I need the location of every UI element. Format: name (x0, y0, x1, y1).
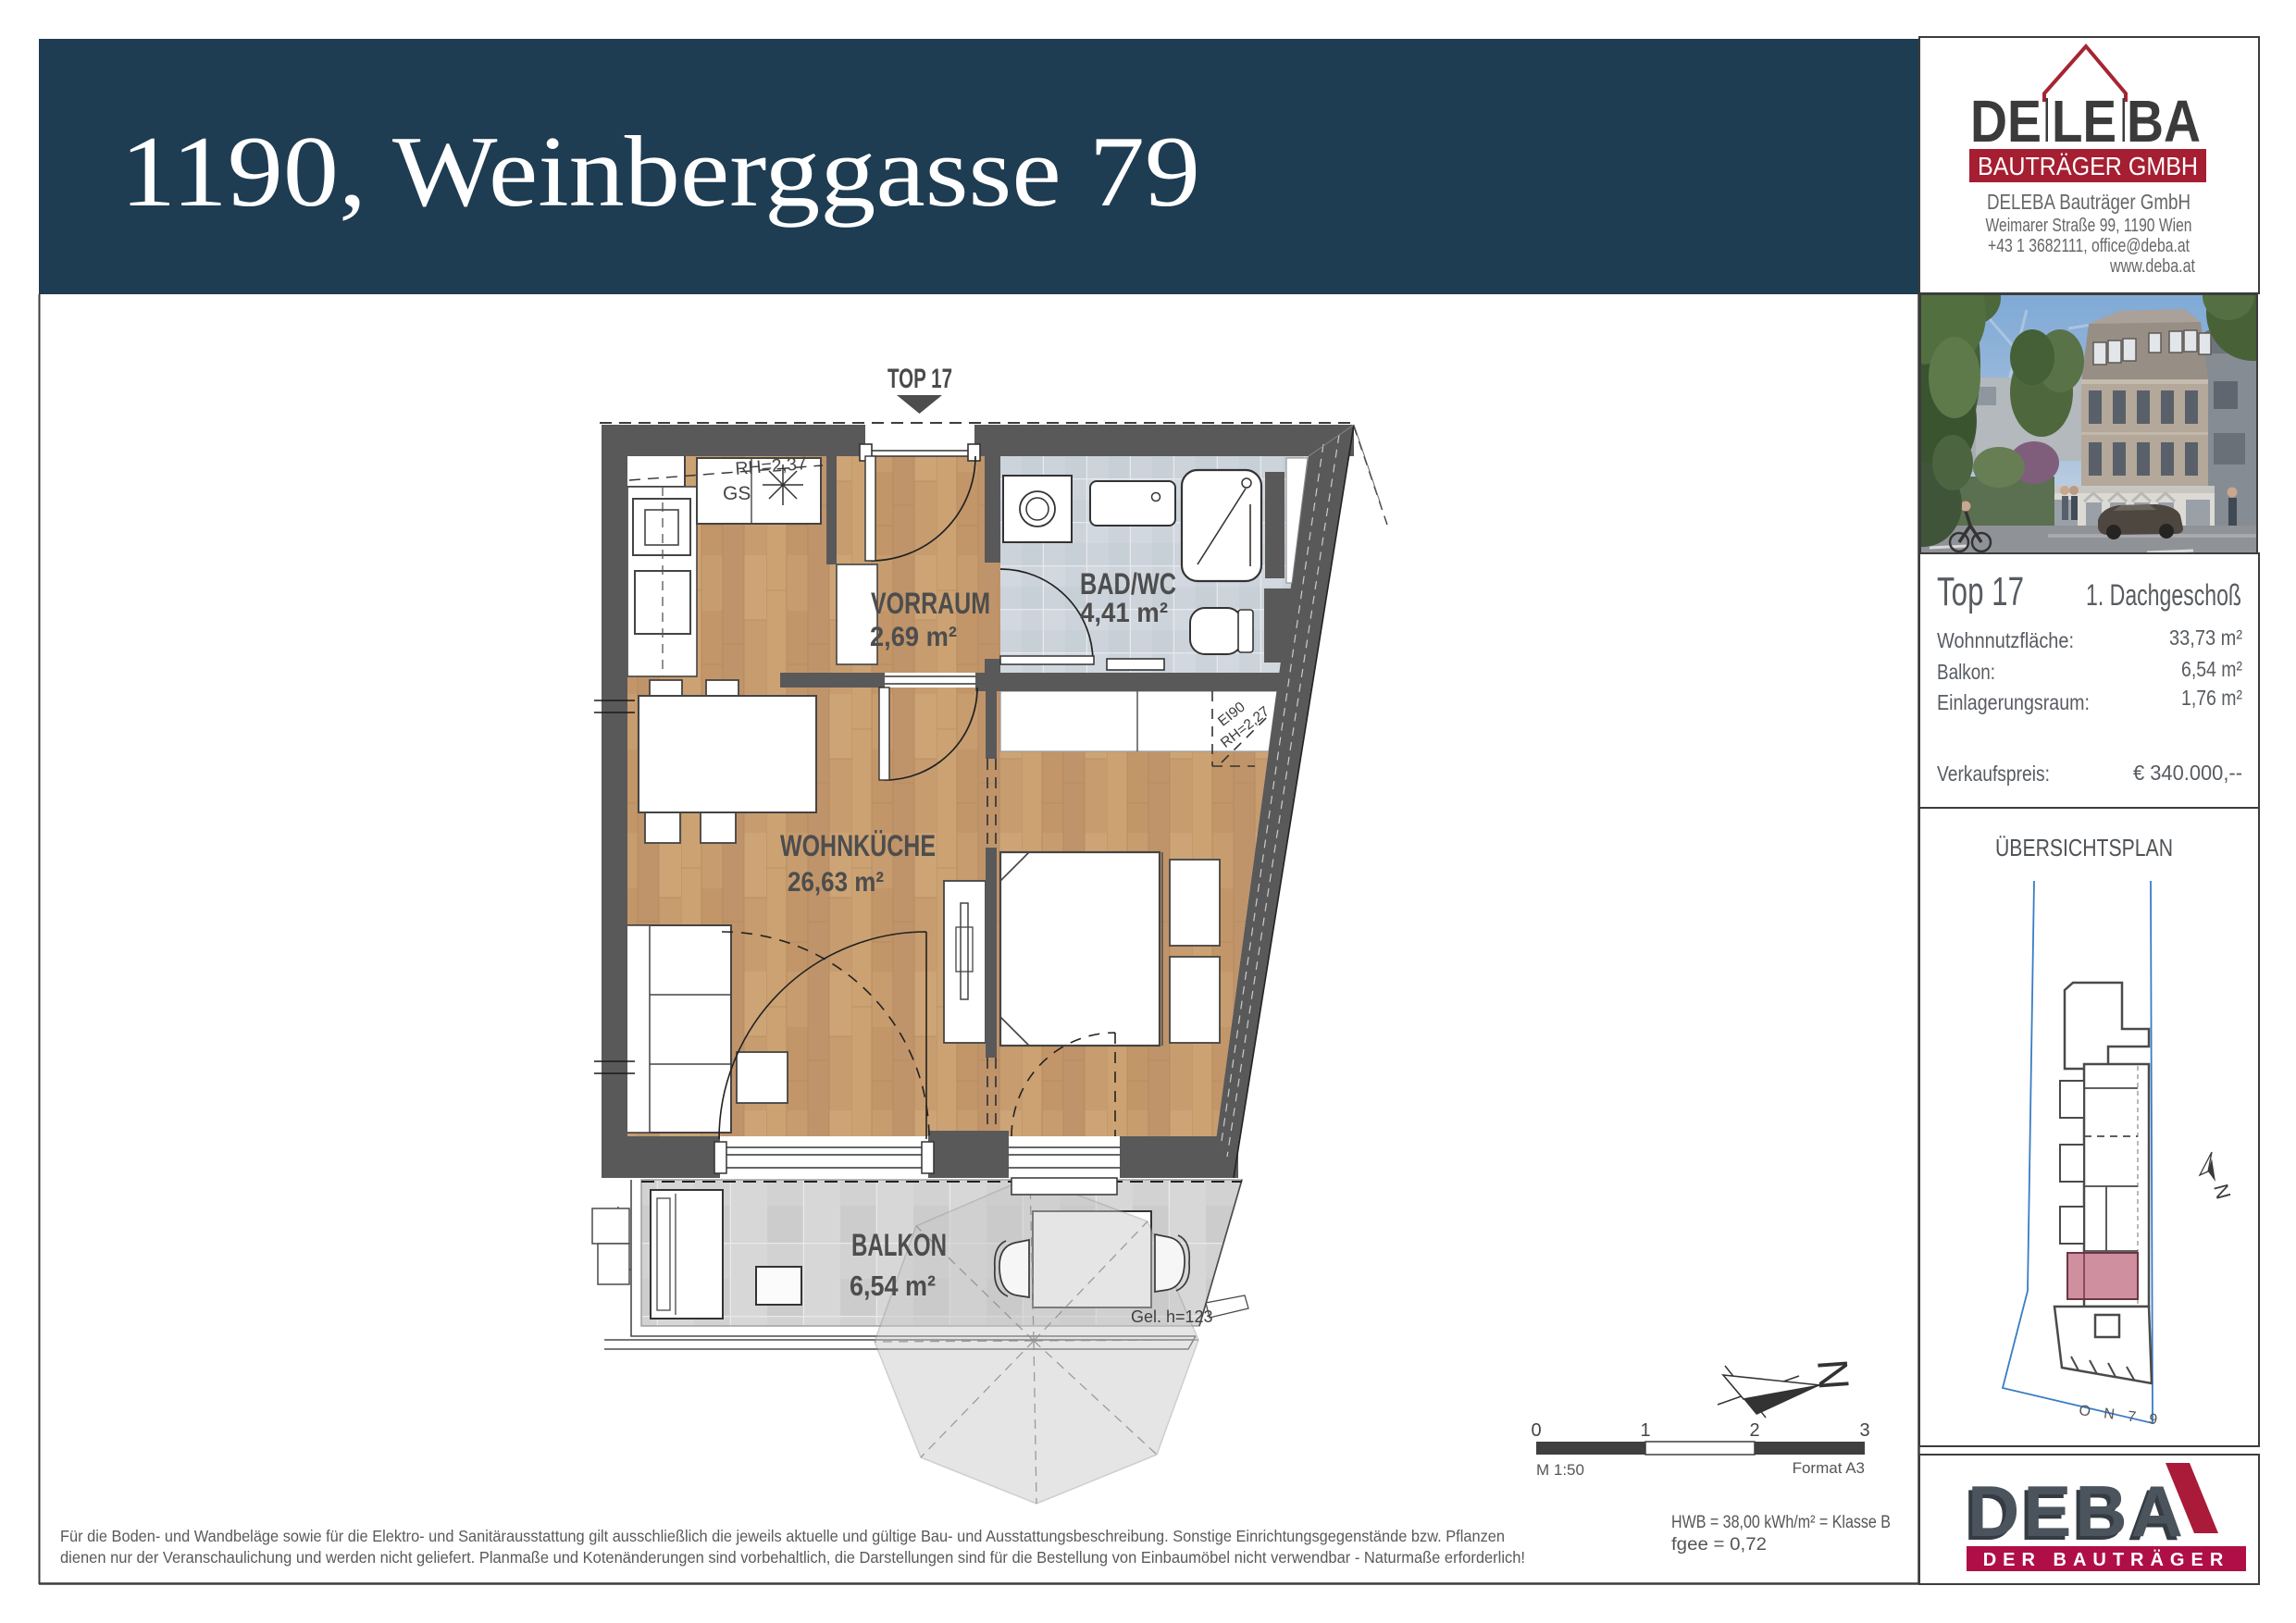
svg-text:Verkaufspreis:: Verkaufspreis: (1937, 762, 2050, 786)
svg-text:BA: BA (2127, 88, 2201, 155)
svg-text:LE: LE (2052, 88, 2116, 155)
svg-text:Für die Boden- und Wandbeläge: Für die Boden- und Wandbeläge sowie für … (60, 1527, 1505, 1545)
svg-text:4,41 m²: 4,41 m² (1080, 598, 1168, 628)
svg-text:2,69 m²: 2,69 m² (870, 622, 957, 652)
svg-text:Format A3: Format A3 (1793, 1459, 1865, 1477)
svg-text:3: 3 (1859, 1420, 1869, 1441)
svg-text:1: 1 (1640, 1420, 1650, 1441)
svg-text:2: 2 (1749, 1420, 1759, 1441)
svg-text:DE: DE (1970, 88, 2042, 155)
svg-text:dienen nur der Veranschaulichu: dienen nur der Veranschaulichung und wer… (60, 1548, 1525, 1567)
svg-text:1,76 m²: 1,76 m² (2181, 686, 2242, 710)
svg-text:BAD/WC: BAD/WC (1080, 567, 1176, 601)
svg-text:Gel. h=123: Gel. h=123 (1131, 1307, 1213, 1326)
svg-text:VORRAUM: VORRAUM (871, 587, 990, 620)
svg-text:+43 1 3682111, office@deba.at: +43 1 3682111, office@deba.at (1988, 235, 2190, 256)
svg-text:1. Dachgeschoß: 1. Dachgeschoß (2086, 578, 2241, 612)
svg-text:DELEBA Bauträger GmbH: DELEBA Bauträger GmbH (1987, 190, 2191, 214)
svg-text:DER BAUTRÄGER: DER BAUTRÄGER (1983, 1549, 2230, 1570)
svg-text:Einlagerungsraum:: Einlagerungsraum: (1937, 690, 2090, 714)
svg-text:www.deba.at: www.deba.at (2109, 255, 2195, 277)
svg-text:BALKON: BALKON (851, 1228, 947, 1263)
svg-text:ÜBERSICHTSPLAN: ÜBERSICHTSPLAN (1995, 834, 2173, 861)
svg-text:DEBA: DEBA (1967, 1470, 2187, 1552)
svg-text:N: N (1808, 1357, 1858, 1392)
svg-text:GS: GS (723, 483, 751, 504)
svg-text:0: 0 (1531, 1420, 1541, 1441)
svg-text:6,54 m²: 6,54 m² (850, 1270, 936, 1302)
svg-text:€ 340.000,--: € 340.000,-- (2133, 761, 2242, 785)
svg-text:BAUTRÄGER GMBH: BAUTRÄGER GMBH (1978, 152, 2198, 180)
svg-text:Wohnnutzfläche:: Wohnnutzfläche: (1937, 628, 2074, 652)
svg-text:fgee = 0,72: fgee = 0,72 (1671, 1535, 1767, 1555)
svg-text:Weimarer Straße 99, 1190 Wien: Weimarer Straße 99, 1190 Wien (1986, 215, 2192, 236)
svg-text:Top 17: Top 17 (1937, 569, 2024, 614)
svg-text:HWB = 38,00 kWh/m² = Klass: HWB = 38,00 kWh/m² = Klasse B (1671, 1513, 1891, 1532)
svg-text:6,54 m²: 6,54 m² (2181, 657, 2242, 681)
svg-text:M 1:50: M 1:50 (1536, 1461, 1584, 1479)
svg-text:26,63 m²: 26,63 m² (788, 867, 884, 898)
svg-text:WOHNKÜCHE: WOHNKÜCHE (780, 829, 936, 862)
svg-text:TOP 17: TOP 17 (887, 364, 952, 394)
svg-text:Balkon:: Balkon: (1937, 660, 1995, 684)
svg-text:33,73 m²: 33,73 m² (2169, 626, 2242, 650)
svg-text:1190, Weinberggasse 79: 1190, Weinberggasse 79 (120, 116, 1200, 228)
